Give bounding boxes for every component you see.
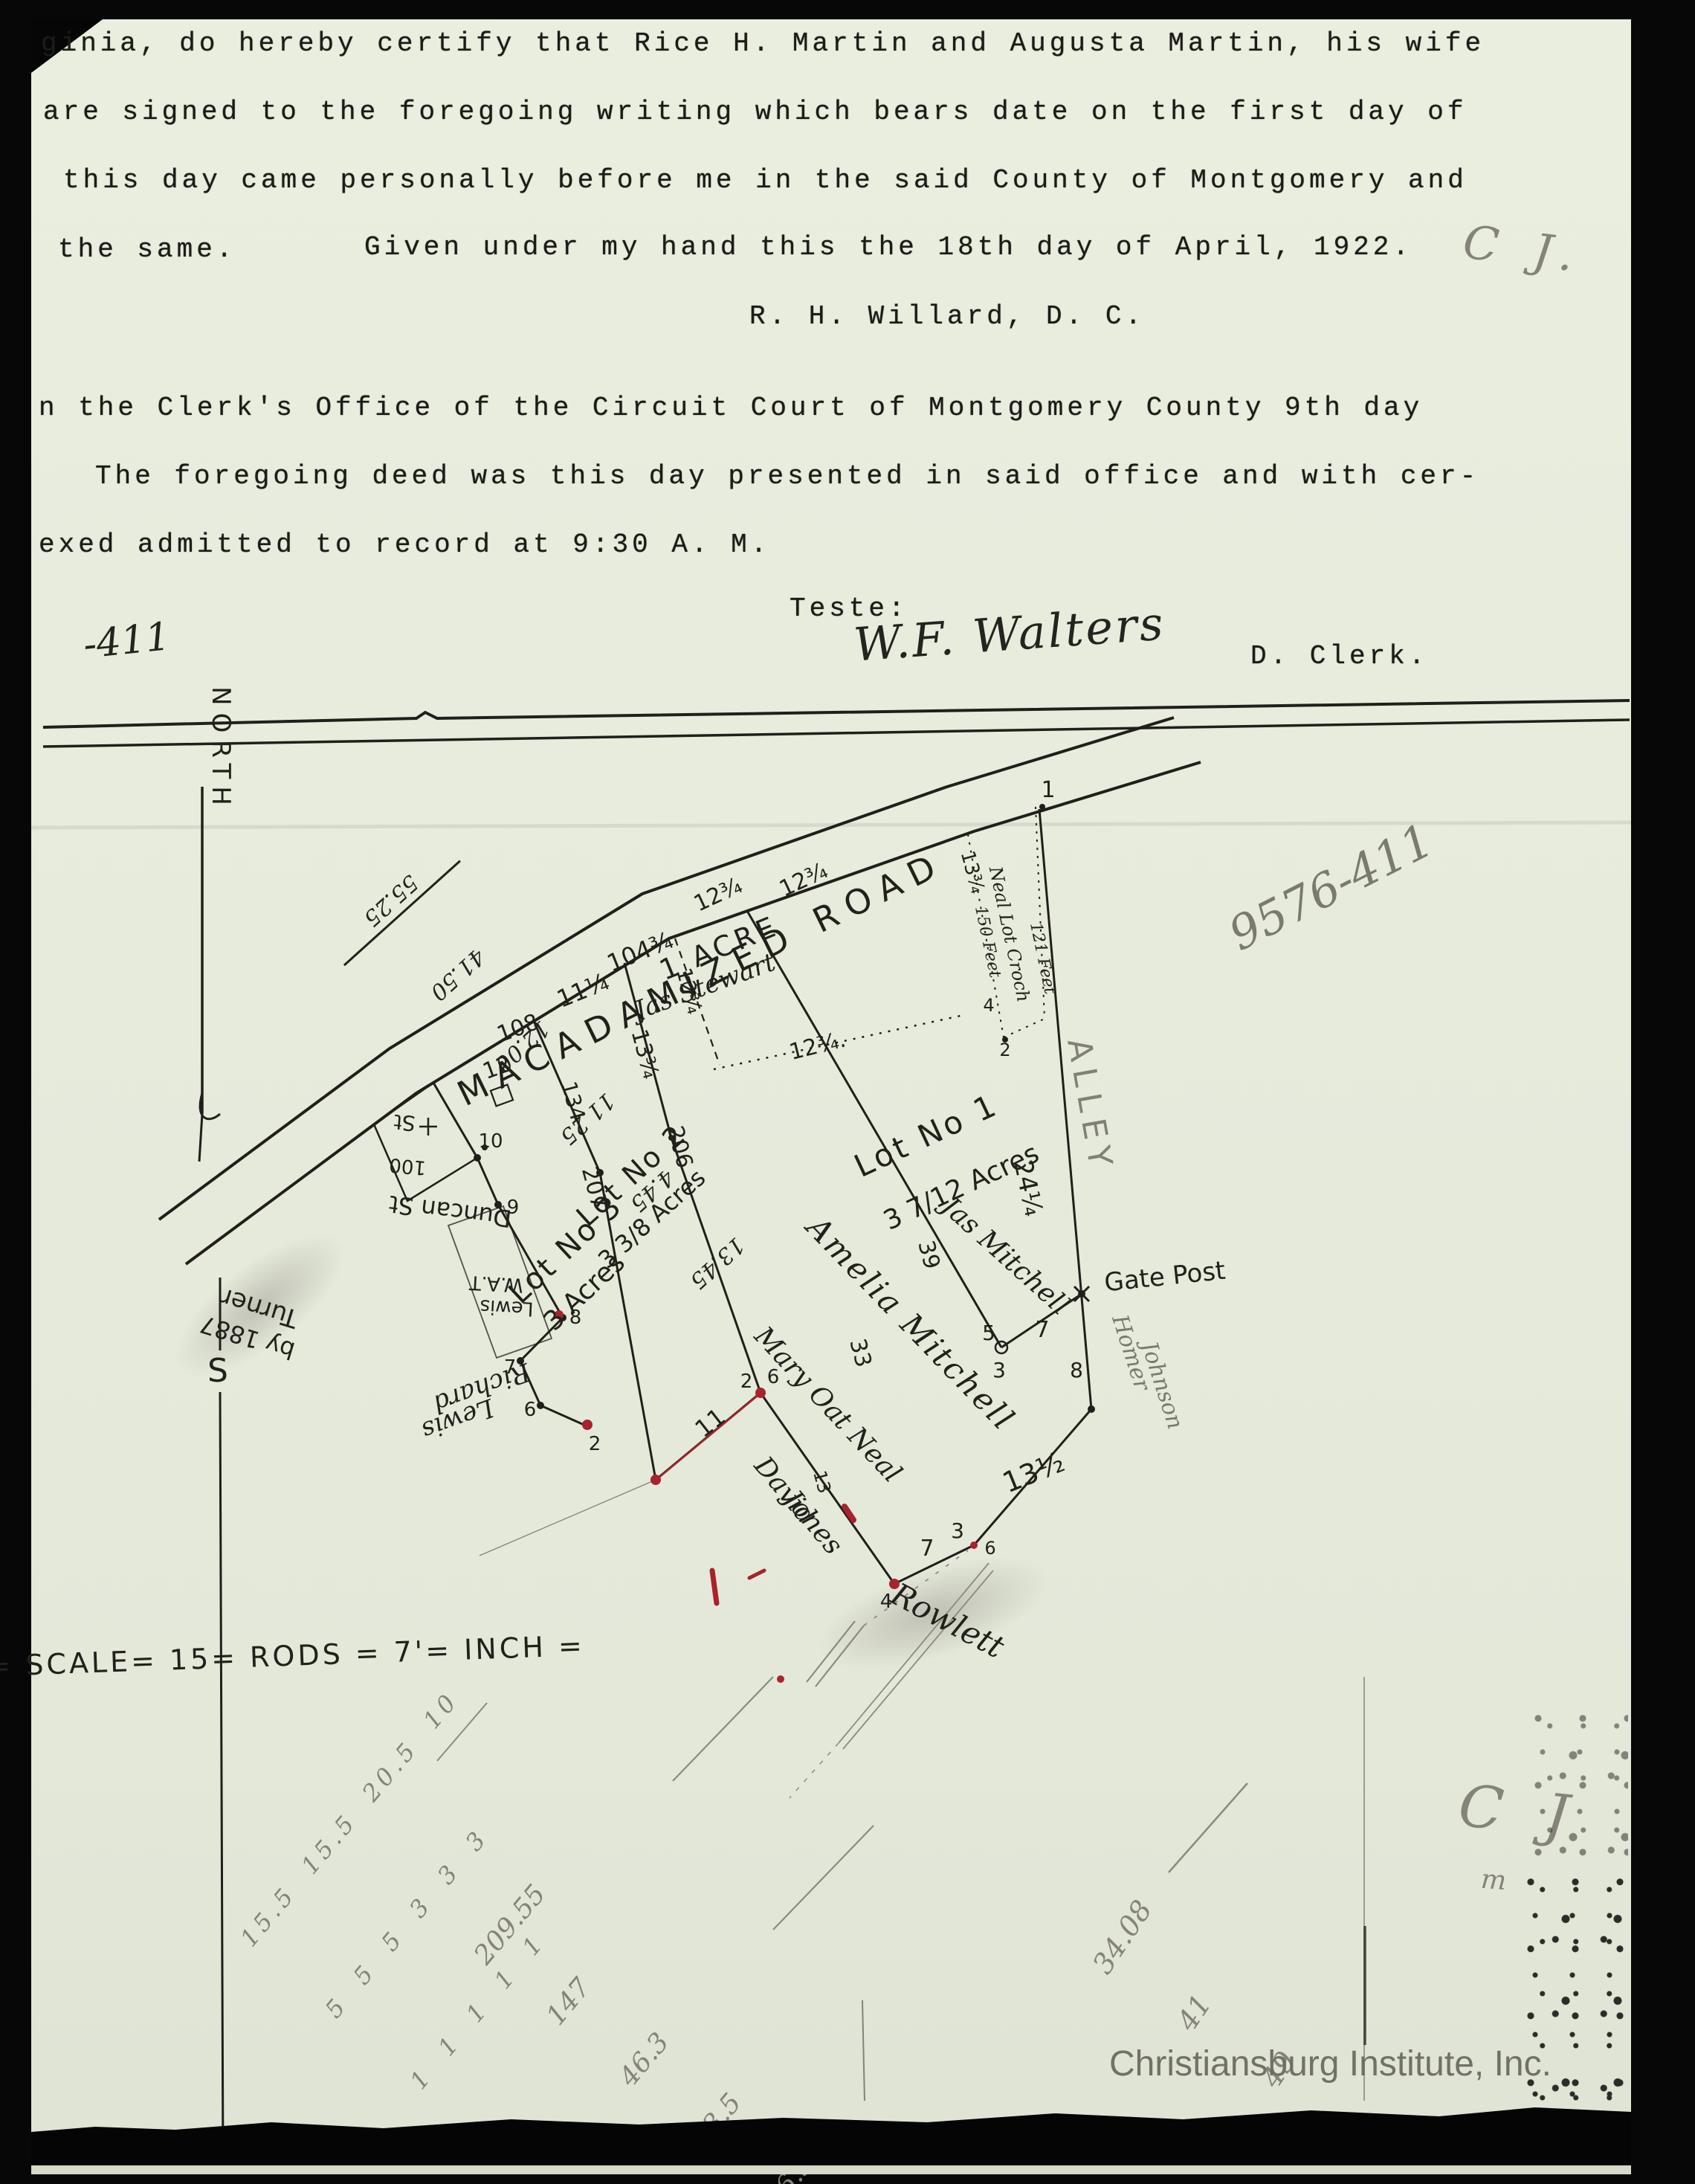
scan-noise [1524, 1874, 1631, 2127]
vertex-6: 6 [524, 1399, 537, 1421]
divider-rule-bottom [43, 720, 1630, 747]
vertical-crease-small [862, 2000, 865, 2101]
vertex-3b: 3 [951, 1518, 964, 1543]
scan-noise [1531, 1710, 1628, 1859]
rowlett-label: Rowlett [885, 1575, 1011, 1665]
vertex-6c: 6 [984, 1538, 995, 1559]
dim-33: 33 [844, 1336, 876, 1370]
vertex-6b: 6 [767, 1366, 780, 1388]
meridian-line [220, 1278, 223, 2165]
dim-13-3-4-a: 13¾ [626, 1027, 664, 1082]
gate-post-label: Gate Post [1103, 1256, 1227, 1298]
dim-24-quarter: 24¼ [1007, 1157, 1048, 1219]
dim-11: 11 [689, 1402, 730, 1443]
vertex-4b: 4 [983, 995, 994, 1016]
vertex-3: 3 [992, 1358, 1006, 1382]
watermark: Christiansburg Institute, Inc. [1109, 2043, 1552, 2084]
wat-lewis-label: Lewis [480, 1295, 535, 1320]
vertex-8: 8 [569, 1307, 582, 1329]
vertex-9: 9 [507, 1196, 520, 1219]
dim-7-a: 7 [1035, 1317, 1049, 1343]
st-label: St [393, 1109, 416, 1136]
vertex-5: 5 [982, 1321, 995, 1345]
vertex-2: 2 [589, 1433, 601, 1455]
scanned-deed-page: ginia, do hereby certify that Rice H. Ma… [0, 0, 1695, 2184]
dim-7-b: 7 [920, 1536, 934, 1562]
dim-12-3-4-dotted: 12¾. [787, 1027, 848, 1066]
pencil-guides [437, 1550, 1247, 1930]
vertex-2c: 2 [999, 1040, 1010, 1060]
vertex-7: 7 [504, 1356, 517, 1379]
south-label: S [207, 1352, 228, 1390]
faint-boundary [480, 1480, 656, 1556]
dim-13-3-4-b: 13¾ [956, 848, 989, 896]
north-label: NORTH [206, 686, 236, 813]
scale-note: = SCALE= 15= RODS = 7'= INCH = [0, 1629, 585, 1683]
vertex-4: 4 [880, 1591, 893, 1613]
dim-134: 134 [556, 1078, 590, 1123]
lot1-owner: Jas Mitchell [932, 1188, 1075, 1321]
wat-label: W.A.T [468, 1271, 523, 1296]
deed-ref-pencil: 9576-411 [1220, 813, 1441, 961]
dim-8: 8 [1070, 1358, 1083, 1382]
dim-13: 13 [809, 1469, 835, 1496]
paper-bottom-edge [31, 2165, 1631, 2174]
survey-plat-map: NORTH S MACADAMIZED ROAD 9576-411 St 100 [0, 0, 1695, 2184]
vertex-2b: 2 [740, 1370, 753, 1393]
dim-12-3-4-a: 12¾ [690, 872, 746, 917]
vertex-10: 10 [478, 1130, 503, 1153]
hundred-label: 100 [388, 1153, 427, 1179]
dim-13-half: 13½ [998, 1446, 1068, 1500]
vertex-1: 1 [1041, 777, 1055, 803]
plus-mark [419, 1118, 437, 1136]
